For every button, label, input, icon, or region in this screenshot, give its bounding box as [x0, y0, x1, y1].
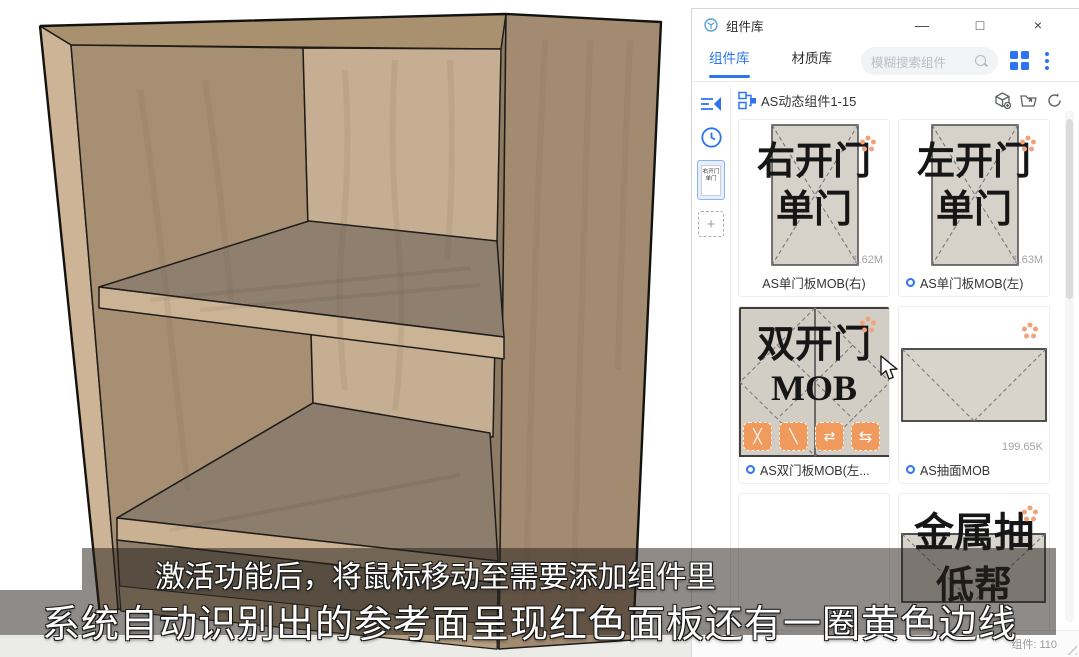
- card-thumbnail: 右开门 单门 1.62M: [739, 120, 889, 270]
- dynamic-component-dot-icon: [906, 465, 915, 474]
- dynamic-component-dot-icon: [906, 278, 915, 287]
- component-cube-icon[interactable]: [992, 90, 1012, 110]
- component-count: 组件: 110: [1011, 636, 1057, 652]
- subtitle-band-1: 激活功能后，将鼠标移动至需要添加组件里: [82, 548, 1056, 590]
- favorite-flower-icon[interactable]: [1021, 321, 1039, 339]
- replace-action-button[interactable]: ⇄: [815, 422, 844, 451]
- filter-collapse-icon[interactable]: [699, 93, 723, 115]
- tree-icon[interactable]: [738, 91, 757, 110]
- tab-bar: 组件库 材质库 模糊搜索组件: [692, 41, 1079, 81]
- window-title: 组件库: [726, 16, 764, 35]
- scrollbar-thumb[interactable]: [1066, 119, 1073, 299]
- card-title-row[interactable]: AS单门板MOB(左): [899, 269, 1049, 296]
- swap-action-button[interactable]: ⇆: [851, 422, 880, 451]
- window-controls: — □ ×: [907, 10, 1053, 40]
- section-header: AS动态组件1-15: [731, 85, 1079, 115]
- draw-action-button[interactable]: ╲: [779, 422, 808, 451]
- card-title[interactable]: AS单门板MOB(右): [739, 269, 889, 296]
- favorite-flower-icon[interactable]: [859, 134, 877, 152]
- card-thumbnail: 左开门 单门 1.63M: [899, 120, 1049, 270]
- component-card-hovered[interactable]: 双开门 MOB ╳ ╲ ⇄ ⇆ AS双门板MOB(左...: [738, 306, 890, 484]
- screenshot-stage: 组件库 — □ × 组件库 材质库 模糊搜索组件: [0, 0, 1079, 657]
- favorite-flower-icon[interactable]: [859, 315, 877, 333]
- resize-grip[interactable]: [1062, 640, 1077, 655]
- dynamic-component-dot-icon: [746, 465, 755, 474]
- subtitle-line-2: 系统自动识别出的参考面呈现红色面板还有一圈黄色边线: [42, 593, 1017, 648]
- recent-thumb-text-1: 右开门: [703, 169, 720, 175]
- search-icon[interactable]: [975, 55, 988, 68]
- minimize-button[interactable]: —: [907, 10, 937, 40]
- section-title[interactable]: AS动态组件1-15: [761, 91, 856, 110]
- close-button[interactable]: ×: [1023, 10, 1053, 40]
- file-size: 1.63M: [1012, 254, 1043, 266]
- mouse-cursor: [877, 355, 901, 382]
- card-title-row[interactable]: AS抽面MOB: [899, 456, 1049, 483]
- card-hover-actions: ╳ ╲ ⇄ ⇆: [743, 422, 880, 451]
- grid-view-icon[interactable]: [1010, 51, 1030, 71]
- favorite-flower-icon[interactable]: [1021, 504, 1039, 522]
- card-thumbnail: 双开门 MOB ╳ ╲ ⇄ ⇆: [739, 307, 889, 457]
- add-component-button[interactable]: +: [698, 211, 724, 237]
- window-titlebar[interactable]: 组件库 — □ ×: [692, 9, 1079, 41]
- card-title: AS抽面MOB: [920, 460, 990, 479]
- more-menu-icon[interactable]: [1043, 50, 1051, 72]
- tab-material-library[interactable]: 材质库: [792, 41, 833, 81]
- recent-component-thumb[interactable]: 右开门 单门: [697, 160, 725, 200]
- component-card[interactable]: 199.65K AS抽面MOB: [898, 306, 1050, 484]
- card-title: AS双门板MOB(左...: [760, 460, 870, 479]
- open-folder-icon[interactable]: [1018, 90, 1038, 110]
- subtitle-band-2: 系统自动识别出的参考面呈现红色面板还有一圈黄色边线: [0, 590, 1056, 635]
- maximize-button[interactable]: □: [965, 10, 995, 40]
- history-clock-icon[interactable]: [700, 126, 723, 149]
- card-thumbnail: 199.65K: [899, 307, 1049, 457]
- component-card[interactable]: 左开门 单门 1.63M AS单门板MOB(左): [898, 119, 1050, 297]
- card-title: AS单门板MOB(左): [920, 273, 1023, 292]
- component-card[interactable]: 右开门 单门 1.62M AS单门板MOB(右): [738, 119, 890, 297]
- file-size: 199.65K: [1002, 441, 1043, 453]
- app-logo-icon: [704, 18, 718, 32]
- card-title-row[interactable]: AS双门板MOB(左...: [739, 456, 889, 483]
- tab-component-library[interactable]: 组件库: [709, 41, 750, 81]
- search-placeholder: 模糊搜索组件: [871, 52, 946, 71]
- scrollbar[interactable]: [1065, 111, 1074, 622]
- file-size: 1.62M: [852, 254, 883, 266]
- scale-action-button[interactable]: ╳: [743, 422, 772, 451]
- refresh-icon[interactable]: [1044, 90, 1064, 110]
- favorite-flower-icon[interactable]: [1019, 134, 1037, 152]
- recent-thumb-text-2: 单门: [705, 176, 716, 182]
- divider: [692, 81, 1079, 82]
- search-input[interactable]: 模糊搜索组件: [861, 47, 998, 75]
